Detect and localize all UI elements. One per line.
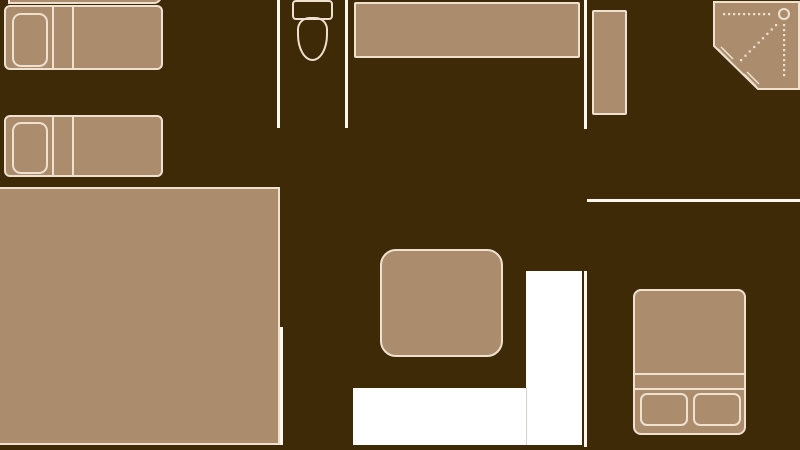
hall-wall-top [584,0,587,129]
rug-side-wall [280,327,283,445]
entry-area-seam [526,388,527,445]
double-bed-pillow-right [693,393,741,426]
center-table [380,249,503,357]
tall-cabinet [592,10,627,115]
bathroom-wall-left [277,0,280,128]
single-bed-2-divider-a [52,115,54,177]
clipped-bed-edge [8,0,162,4]
single-bed-2-divider-b [72,115,74,177]
countertop [354,2,580,58]
floor-plan [0,0,800,450]
single-bed-1-pillow [12,13,48,67]
bedroom-wall-horizontal [587,199,800,202]
entry-area-horizontal [353,388,582,445]
double-bed-fold-line-b [635,388,744,390]
double-bed-pillow-left [640,393,688,426]
corner-shower [713,1,800,91]
single-bed-1-divider-a [52,5,54,70]
single-bed-2-pillow [12,122,48,174]
large-rug [0,187,280,445]
bathroom-wall-right [345,0,348,128]
double-bed-fold-line-a [635,373,744,375]
hall-wall-mid [584,271,587,447]
toilet-bowl [297,17,328,61]
single-bed-1-divider-b [72,5,74,70]
